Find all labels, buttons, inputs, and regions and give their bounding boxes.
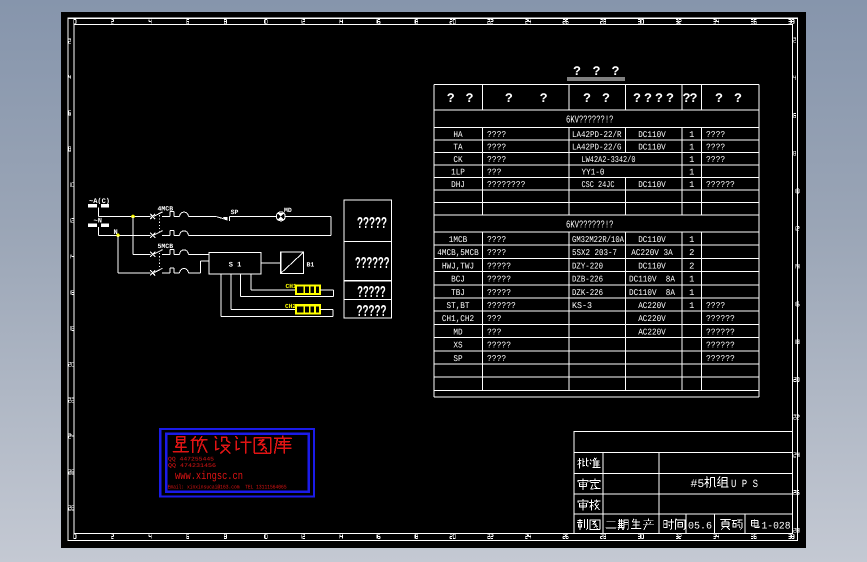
svg-text:LA42PD-22/G: LA42PD-22/G [572,143,622,153]
svg-text:U P S: U P S [731,479,758,491]
svg-text:????: ???? [706,155,725,165]
svg-text:?????: ????? [357,214,387,233]
svg-text:KS-3: KS-3 [572,301,592,311]
svg-text:TBJ: TBJ [451,288,465,298]
svg-text:1-028: 1-028 [762,522,791,533]
svg-text:1: 1 [689,180,694,190]
svg-text:?????: ????? [487,261,511,271]
svg-text:?: ? [666,91,674,106]
svg-text:QQ 474231456: QQ 474231456 [168,462,216,469]
svg-text:????: ???? [706,301,725,311]
svg-text:1: 1 [689,155,694,165]
svg-text:?: ? [602,91,610,106]
svg-text:????: ???? [487,143,506,153]
svg-text:DZK-226: DZK-226 [572,288,603,298]
svg-text:1LP: 1LP [451,168,465,178]
svg-text:SP: SP [231,209,239,216]
svg-text:AC220V 3A: AC220V 3A [631,248,673,258]
svg-text:Email: xinxinsucai@163.com TE: Email: xinxinsucai@163.com TEL 131115640… [168,483,287,490]
svg-text:??????: ?????? [706,327,735,337]
svg-text:????: ???? [706,143,725,153]
svg-text:?: ? [505,91,513,106]
svg-text:????: ???? [487,354,506,364]
svg-text:????: ???? [706,130,725,140]
svg-text:ST,BT: ST,BT [447,301,470,311]
svg-text:DC110V 8A: DC110V 8A [629,275,676,285]
svg-text:AC220V: AC220V [638,327,666,337]
svg-text:#5: #5 [691,478,705,491]
svg-text:MD: MD [284,207,292,214]
svg-text:YY1-0: YY1-0 [582,168,605,178]
svg-text:HA: HA [453,130,463,140]
svg-text:05.6: 05.6 [688,522,712,533]
svg-text:DC110V: DC110V [638,235,666,245]
svg-text:?: ? [734,91,742,106]
svg-text:SP: SP [453,354,462,364]
svg-text:???: ??? [487,168,501,178]
svg-text:????: ???? [487,130,506,140]
svg-text:????: ???? [487,155,506,165]
svg-text:2: 2 [689,261,694,271]
svg-text:DC110V: DC110V [638,130,666,140]
svg-text:????: ???? [487,235,506,245]
svg-text:??????: ?????? [706,341,735,351]
svg-text:DHJ: DHJ [451,180,465,190]
svg-text:?: ? [447,91,455,106]
svg-text:?: ? [583,91,591,106]
svg-text:1MCB: 1MCB [449,235,467,245]
svg-text:???: ??? [487,314,501,324]
svg-text:GM32M22R/10A: GM32M22R/10A [572,235,625,245]
svg-text:CK: CK [453,155,463,165]
svg-text:6KV??????!?: 6KV??????!? [566,219,614,231]
svg-text:?????: ????? [487,275,511,285]
svg-text:?: ? [612,64,620,79]
svg-text:?: ? [644,91,652,106]
svg-text:??????: ?????? [706,314,735,324]
svg-text:S 1: S 1 [229,261,242,269]
svg-text:1: 1 [689,301,694,311]
svg-text:AC220V: AC220V [638,314,666,324]
svg-text:?: ? [655,91,663,106]
svg-text:2: 2 [689,248,694,258]
svg-text:LA42PD-22/R: LA42PD-22/R [572,130,622,140]
svg-text:??????: ?????? [706,354,735,364]
svg-text:DC110V: DC110V [638,180,666,190]
svg-text:HWJ,TWJ: HWJ,TWJ [442,261,474,271]
svg-text:DC110V 8A: DC110V 8A [629,288,676,298]
svg-text:?: ? [573,64,581,79]
svg-text:?: ? [690,91,698,106]
svg-text:CH2: CH2 [285,303,296,310]
svg-text:CSC 24JC: CSC 24JC [582,180,615,190]
svg-text:??????: ?????? [355,254,390,273]
svg-text:?: ? [593,64,601,79]
svg-text:1: 1 [689,288,694,298]
svg-text:XS: XS [453,341,462,351]
svg-text:?: ? [633,91,641,106]
svg-text:??????: ?????? [487,301,516,311]
svg-text:?: ? [466,91,474,106]
svg-text:DZB-226: DZB-226 [572,275,603,285]
svg-text:?????: ????? [487,341,511,351]
svg-text:DC110V: DC110V [638,261,666,271]
svg-text:???: ??? [487,327,501,337]
svg-text:????: ???? [487,248,506,258]
svg-text:1: 1 [689,168,694,178]
svg-text:4MCB,5MCB: 4MCB,5MCB [437,248,478,258]
svg-text:?????: ????? [487,288,511,298]
svg-text:????????: ???????? [487,180,525,190]
svg-text:1: 1 [689,235,694,245]
svg-text:DZY-220: DZY-220 [572,261,603,271]
svg-text:CH1,CH2: CH1,CH2 [442,314,474,324]
svg-text:1: 1 [689,275,694,285]
svg-text:5SX2 203-7: 5SX2 203-7 [572,248,617,258]
svg-text:www.xingsc.cn: www.xingsc.cn [175,470,243,483]
svg-text:AC220V: AC220V [638,301,666,311]
svg-text:?: ? [715,91,723,106]
svg-text:TA: TA [453,143,463,153]
svg-text:1: 1 [689,130,694,140]
svg-text:?: ? [540,91,548,106]
svg-text:BCJ: BCJ [451,275,465,285]
svg-text:B1: B1 [307,261,315,268]
svg-text:LW42A2-3342/0: LW42A2-3342/0 [582,155,636,165]
svg-text:DC110V: DC110V [638,143,666,153]
svg-text:??????: ?????? [706,180,735,190]
svg-text:6KV??????!?: 6KV??????!? [566,115,614,127]
svg-text:?????: ????? [357,302,387,321]
svg-text:MD: MD [453,327,462,337]
svg-text:1: 1 [689,143,694,153]
